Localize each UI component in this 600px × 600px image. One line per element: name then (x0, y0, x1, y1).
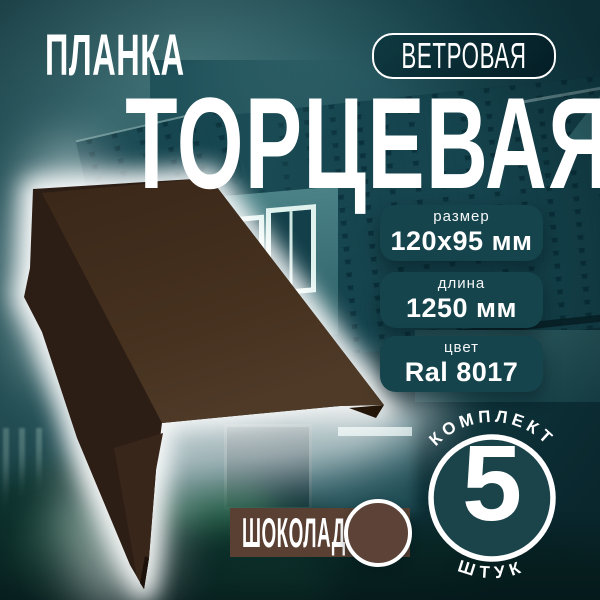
spec-value: 1250 мм (406, 293, 517, 324)
spec-chip-color: цвет Ral 8017 (380, 336, 543, 392)
spec-chip-length: длина 1250 мм (380, 272, 543, 328)
title-line2: ТОРЦЕВАЯ (0, 78, 600, 208)
spec-value: 120x95 мм (390, 226, 532, 257)
product-card: ПЛАНКА ВЕТРОВАЯ ТОРЦЕВАЯ размер 120x95 м… (0, 0, 600, 600)
title-line2-text: ТОРЦЕВАЯ (125, 78, 600, 208)
spec-value: Ral 8017 (405, 357, 519, 388)
spec-chip-size: размер 120x95 мм (380, 205, 543, 261)
spec-label: длина (438, 276, 486, 293)
color-swatch-circle (344, 499, 412, 567)
kit-count: 5 (462, 422, 522, 543)
kit-count-badge: КОМПЛЕКТ ШТУК 5 (394, 400, 590, 596)
spec-label: цвет (444, 340, 479, 357)
color-name-label: ШОКОЛАД (242, 512, 346, 554)
spec-label: размер (433, 209, 489, 226)
type-badge-label: ВЕТРОВАЯ (401, 38, 526, 74)
